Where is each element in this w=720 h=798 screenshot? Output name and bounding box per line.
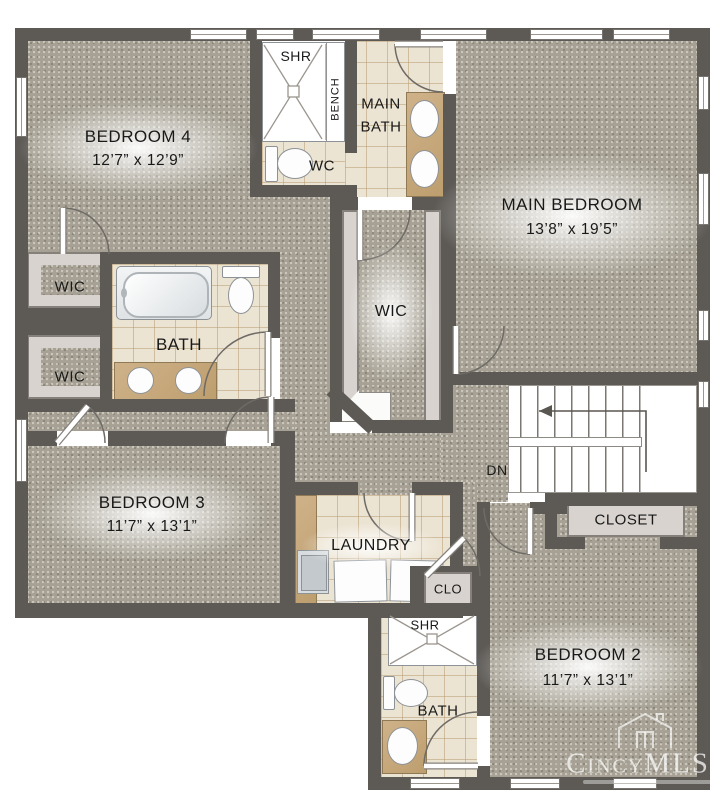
main-wic-linen xyxy=(358,392,391,423)
wall-wic-divider xyxy=(15,308,112,335)
window-top-4 xyxy=(420,29,487,40)
window-bottom-2 xyxy=(510,778,560,789)
window-top-6 xyxy=(613,29,670,40)
stairs-rail xyxy=(508,437,642,447)
wall-lowershower-top xyxy=(381,603,485,614)
bathtub-basin xyxy=(123,272,209,318)
watermark-underline xyxy=(583,780,715,784)
wall-mainbedroom-bottom xyxy=(443,372,697,385)
wall-bedroom2-top-a xyxy=(477,502,483,514)
wall-shower-bath-divider xyxy=(345,41,357,153)
lower-bath-sink xyxy=(387,727,418,765)
main-bath-label-line2: BATH xyxy=(361,118,402,135)
main-bedroom-glow xyxy=(432,154,712,279)
window-right-1 xyxy=(698,76,709,110)
wall-lowerbath-left xyxy=(368,603,381,790)
wall-middlebath-right xyxy=(268,252,280,338)
wall-closet-stub-right xyxy=(660,537,697,549)
bedroom4-label: BEDROOM 4 xyxy=(85,127,192,147)
middle-bath-sink-2 xyxy=(175,367,202,394)
bedroom2-label: BEDROOM 2 xyxy=(535,645,642,665)
window-left-1 xyxy=(16,77,27,137)
bedroom2-dims: 11’7” x 13’1” xyxy=(543,672,634,690)
watermark: CincyMLS xyxy=(555,708,720,793)
bedroom4-floor-extension xyxy=(28,197,330,252)
hall-strip xyxy=(27,412,295,431)
window-top-2 xyxy=(256,29,294,40)
wall-bedroom3-right xyxy=(280,431,295,605)
window-right-3 xyxy=(698,310,709,341)
wic1-label: WIC xyxy=(55,278,86,295)
wall-bedroom2-left-stub xyxy=(477,766,490,780)
wall-wic-left xyxy=(330,197,342,422)
main-bath-sink-2 xyxy=(410,150,439,188)
wc-toilet-bowl xyxy=(277,148,313,179)
wall-laundry-top-a xyxy=(280,482,358,495)
wall-laundry-right xyxy=(450,482,463,572)
floor-plan: BEDROOM 4 12’7” x 12’9” MAIN BEDROOM 13’… xyxy=(0,0,720,798)
bedroom3-glow xyxy=(37,467,267,562)
bedroom4-dims: 12’7” x 12’9” xyxy=(92,152,184,170)
stairs-upper-treads xyxy=(520,386,642,437)
bedroom3-label: BEDROOM 3 xyxy=(99,493,206,513)
middle-bath-toilet-bowl xyxy=(228,277,254,314)
window-left-2 xyxy=(16,419,27,482)
window-top-5 xyxy=(530,29,603,40)
wall-middlebath-top xyxy=(100,252,280,264)
wic-main-label: WIC xyxy=(375,303,408,321)
lower-bath-label: BATH xyxy=(418,702,459,719)
middle-bath-label: BATH xyxy=(156,335,202,355)
stairs-closet-label: CLOSET xyxy=(594,511,657,528)
wall-shower-left xyxy=(250,41,262,197)
laundry-label: LAUNDRY xyxy=(331,537,411,555)
main-bath-label-line1: MAIN xyxy=(361,95,401,112)
stairs-lower-treads xyxy=(520,447,642,492)
window-bottom-1 xyxy=(410,778,460,789)
bench-label: BENCH xyxy=(330,77,343,121)
wic2-label: WIC xyxy=(55,368,86,385)
wall-wc-bottom xyxy=(250,185,357,197)
clo-label: CLO xyxy=(434,583,462,598)
shr-bottom-label: SHR xyxy=(411,619,440,634)
wc-label: WC xyxy=(309,157,335,174)
wall-closet-stub-left xyxy=(545,537,585,549)
bedroom2-glow xyxy=(473,620,703,715)
main-bath-sink-1 xyxy=(410,100,439,138)
window-top-3 xyxy=(312,29,380,40)
wall-stairs-closet-top xyxy=(545,493,697,506)
hall-clo-strip xyxy=(463,482,477,578)
wall-wic-bottom xyxy=(372,420,453,433)
bedroom4-glow xyxy=(18,101,258,196)
window-top-1 xyxy=(190,29,247,40)
wall-middlebath-bottom xyxy=(15,399,295,412)
middle-bath-sink-1 xyxy=(127,367,154,394)
window-right-4 xyxy=(698,381,709,408)
shr-top-label: SHR xyxy=(280,48,311,64)
main-bedroom-label: MAIN BEDROOM xyxy=(501,195,642,215)
wall-bedroom3-top-b xyxy=(108,431,226,446)
dn-label: DN xyxy=(486,462,507,478)
watermark-house-icon xyxy=(613,710,677,750)
bedroom3-dims: 11’7” x 13’1” xyxy=(107,518,198,536)
watermark-brand: CincyMLS xyxy=(566,748,710,781)
main-bedroom-dims: 13’8” x 19’5” xyxy=(526,221,618,239)
